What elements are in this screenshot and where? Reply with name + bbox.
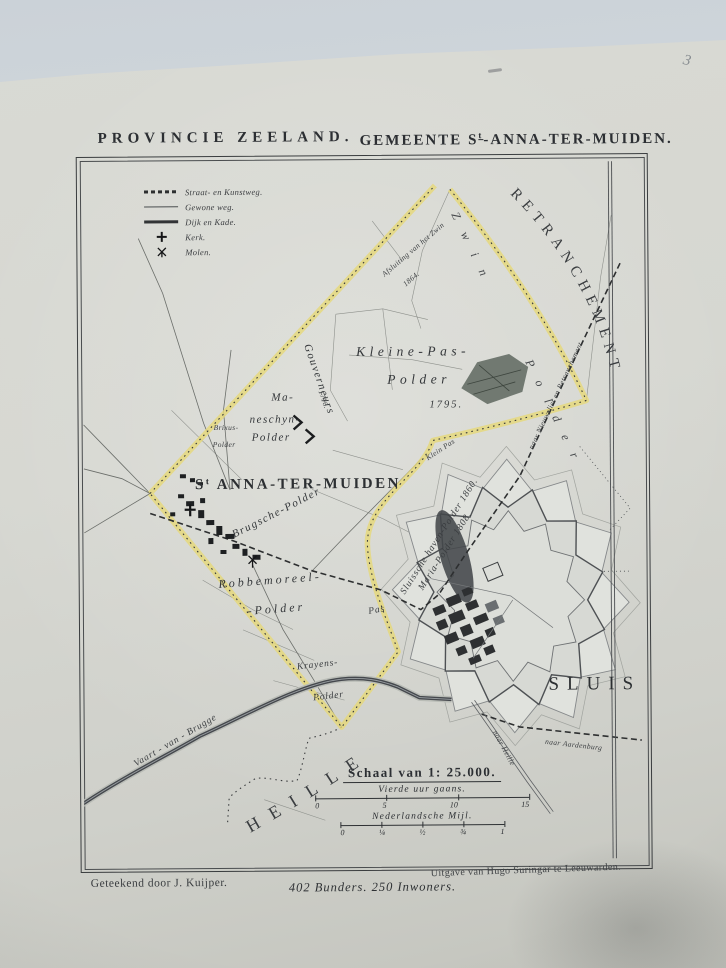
label-kleine-pas-1: Kleine-Pas-: [355, 343, 470, 359]
svg-text:naar Nieuwvliet en Retrancheme: naar Nieuwvliet en Retranchement: [526, 340, 586, 451]
province-title: PROVINCIE ZEELAND.: [98, 129, 354, 148]
label-afsluiting: Afsluiting van het Zwin: [379, 220, 446, 279]
label-naar-heille: naar Heille: [491, 729, 517, 768]
svg-text:Brugsche-Polder: Brugsche-Polder: [230, 485, 323, 541]
legend-row: Straat- en Kunstweg.: [144, 183, 314, 199]
legend-label: Straat- en Kunstweg.: [185, 186, 263, 197]
label-brixus-1: Brixus-: [214, 423, 239, 432]
label-robbemoreel-1: Robbemoreel-: [217, 569, 322, 591]
svg-text:Vaart - van - Brugge: Vaart - van - Brugge: [132, 713, 219, 770]
scale-block: Schaal van 1: 25.000. Vierde uur gaans. …: [308, 763, 537, 838]
label-kleine-pas-year: 1795.: [429, 399, 463, 410]
road-line-icon: [144, 206, 178, 207]
photo-background: 3 PROVINCIE ZEELAND. GEMEENTE St-ANNA-TE…: [0, 0, 726, 968]
dashed-road-line-icon: [144, 191, 178, 194]
woods-patch: [461, 354, 528, 404]
legend-row: Molen.: [144, 243, 314, 259]
svg-text:RETRANCHEMENT: RETRANCHEMENT: [507, 185, 624, 377]
church-cross-icon: [144, 231, 178, 242]
label-retranchement: RETRANCHEMENT: [507, 185, 624, 377]
label-maneschyn-1: Ma-: [270, 391, 294, 403]
scale-bar2-ticks: 0 ¼ ½ ¾ 1: [340, 827, 504, 837]
legend-label: Dijk en Kade.: [185, 216, 236, 226]
map-drawing: RETRANCHEMENT HEILLE Zwin Polder naar Ni…: [80, 157, 647, 867]
label-robbemoreel-2: -Polder: [247, 599, 306, 617]
scale-title: Schaal van 1: 25.000.: [343, 764, 501, 783]
label-vaart-van-brugge: Vaart - van - Brugge: [132, 713, 219, 770]
legend-label: Gewone weg.: [185, 201, 234, 211]
label-afsluiting-year: 1864.: [401, 269, 421, 288]
printed-content: 3 PROVINCIE ZEELAND. GEMEENTE St-ANNA-TE…: [0, 0, 726, 968]
legend-row: Dijk en Kade.: [144, 213, 314, 229]
legend-row: Kerk.: [144, 228, 314, 244]
legend: Straat- en Kunstweg. Gewone weg. Dijk en…: [144, 183, 315, 259]
gemeente-title-prefix: GEMEENTE S: [360, 132, 479, 149]
gemeente-title-rest: -ANNA-TER-MUIDEN.: [483, 131, 673, 148]
label-naar-aardenburg: naar Aardenburg: [545, 737, 603, 753]
label-gouverneurs: Gouverneurs: [301, 342, 337, 416]
dyke-line-icon: [144, 220, 178, 223]
label-maneschyn-3: Polder: [251, 432, 291, 444]
right-straight-road: [608, 161, 616, 858]
label-krayens-2: Polder: [312, 690, 345, 703]
label-brugsche-polder: Brugsche-Polder: [230, 485, 323, 541]
label-maneschyn-2: neschyn-: [250, 413, 301, 425]
label-kleine-pas-2: Polder: [386, 371, 451, 386]
label-sluis: SLUIS: [548, 673, 641, 695]
scale-bar1-ticks: 0 5 10 15: [315, 800, 529, 810]
legend-label: Molen.: [185, 247, 211, 257]
gemeente-title: GEMEENTE St-ANNA-TER-MUIDEN.: [360, 129, 673, 150]
cartographer-credit: Geteekend door J. Kuijper.: [91, 877, 228, 890]
label-st-anna-ter-muiden: St ANNA-TER-MUIDEN: [195, 475, 401, 493]
windmill-icon: [144, 246, 178, 257]
scale-bar2: [340, 821, 504, 828]
label-brixus-2: Polder: [212, 440, 236, 449]
area-population-caption: 402 Bunders. 250 Inwoners.: [289, 879, 456, 895]
legend-row: Gewone weg.: [144, 198, 314, 214]
handwritten-page-number: 3: [681, 52, 692, 70]
legend-label: Kerk.: [185, 232, 205, 242]
label-naar-nieuwvliet: naar Nieuwvliet en Retranchement: [526, 340, 586, 451]
